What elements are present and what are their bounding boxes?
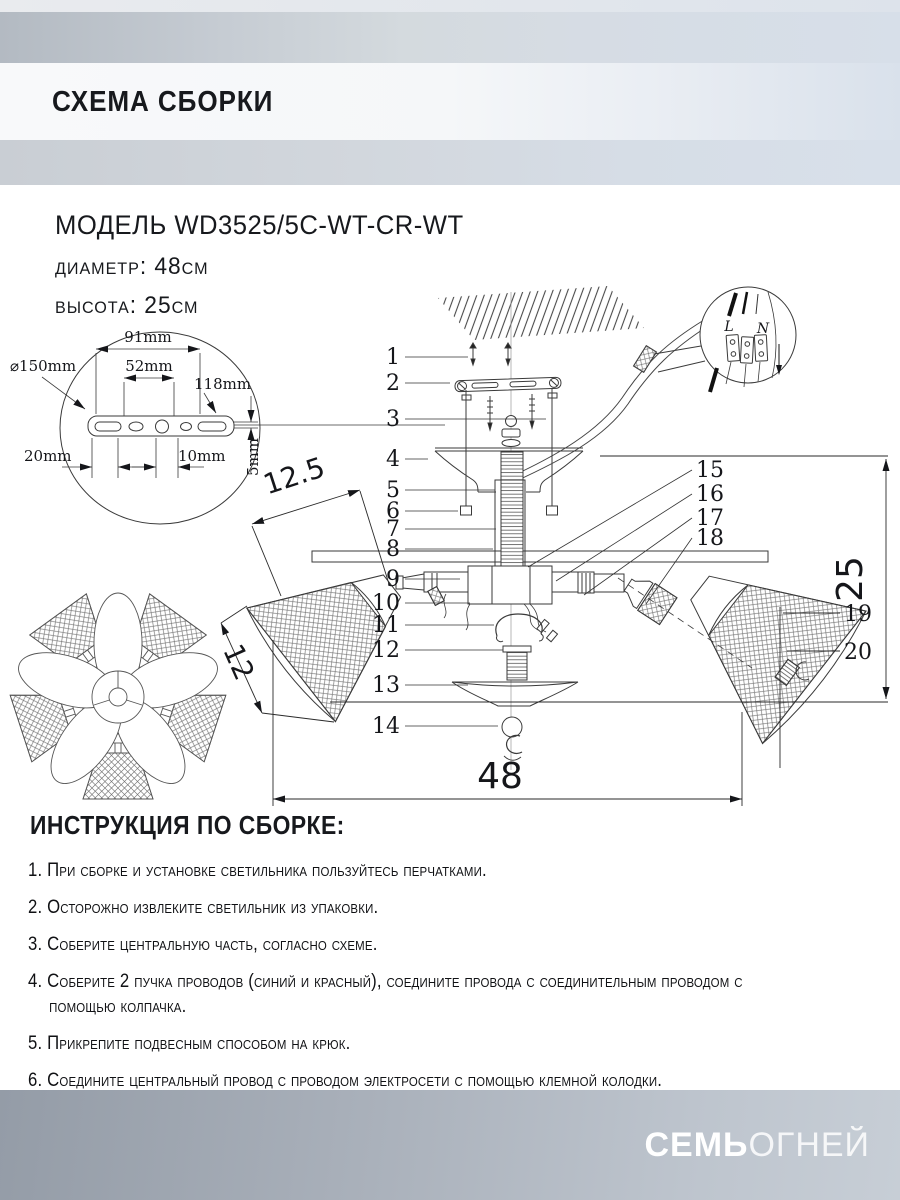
screw-icon	[470, 343, 511, 365]
terminal-l-label: L	[723, 319, 733, 335]
dim-width-label: 48	[477, 756, 523, 797]
header-top-strip	[0, 0, 900, 12]
part-label-20: 20	[844, 640, 872, 665]
mains-cable	[508, 320, 708, 482]
dim-shade-mouth-label: 12.5	[259, 451, 328, 502]
part-label-4: 4	[386, 447, 400, 472]
instructions-list: 1. При сборке и установке светильника по…	[28, 858, 802, 1106]
brand-light-part: ОГНЕЙ	[748, 1126, 870, 1164]
part-label-19: 19	[844, 602, 872, 627]
part-label-11: 11	[372, 613, 400, 638]
brand-logo: СЕМЬОГНЕЙ	[644, 1126, 870, 1165]
terminal-n-label: N	[756, 321, 770, 337]
part-label-1: 1	[386, 345, 400, 370]
part-label-8: 8	[386, 537, 400, 562]
bracket-20-label: 20mm	[24, 447, 72, 465]
part-label-9: 9	[386, 567, 400, 592]
instructions-title: ИНСТРУКЦИЯ ПО СБОРКЕ:	[30, 810, 345, 841]
part-label-3: 3	[386, 407, 400, 432]
instruction-step-4: 4. Соберите 2 пучка проводов (синий и кр…	[28, 969, 802, 1019]
bracket-detail-drawing	[42, 332, 445, 524]
fastener-stack	[502, 416, 520, 447]
part-label-13: 13	[372, 673, 400, 698]
lower-stem-parts	[452, 614, 578, 760]
part-label-12: 12	[372, 638, 400, 663]
bracket-10-label: 10mm	[178, 447, 226, 465]
ceiling-hatch	[438, 286, 644, 340]
assembly-diagram: 1 2 3 4 5 6 7 8 9 10 11 12 13 14 15 16 1…	[0, 185, 900, 810]
bracket-dimension-labels: ⌀150mm 91mm 52mm 118mm 20mm 10mm 5mm	[10, 328, 262, 476]
bracket-52-label: 52mm	[125, 357, 173, 375]
instruction-step-3: 3. Соберите центральную часть, согласно …	[28, 932, 802, 957]
part-label-16: 16	[696, 482, 724, 507]
bracket-91-label: 91mm	[124, 328, 172, 346]
part-label-2: 2	[386, 371, 400, 396]
part-label-14: 14	[372, 714, 400, 739]
central-hub	[396, 566, 677, 642]
instruction-step-5: 5. Прикрепите подвесным способом на крюк…	[28, 1031, 802, 1056]
bracket-diameter-label: ⌀150mm	[10, 357, 76, 375]
part-label-15: 15	[696, 458, 724, 483]
dim-shade-depth-label: 12	[216, 639, 261, 685]
brand-bold-part: СЕМЬ	[644, 1126, 748, 1164]
footer-band: СЕМЬОГНЕЙ	[0, 1090, 900, 1200]
instruction-step-1: 1. При сборке и установке светильника по…	[28, 858, 802, 883]
top-view-drawing	[10, 593, 226, 799]
header-silver-band-bottom	[0, 140, 900, 185]
header-silver-band	[0, 12, 900, 63]
instruction-step-2: 2. Осторожно извлеките светильник из упа…	[28, 895, 802, 920]
bracket-118-label: 118mm	[194, 375, 251, 393]
part-label-18: 18	[696, 526, 724, 551]
page-title: СХЕМА СБОРКИ	[52, 86, 273, 119]
dim-height-label: 25	[830, 556, 871, 602]
part-leader-lines	[405, 357, 692, 726]
